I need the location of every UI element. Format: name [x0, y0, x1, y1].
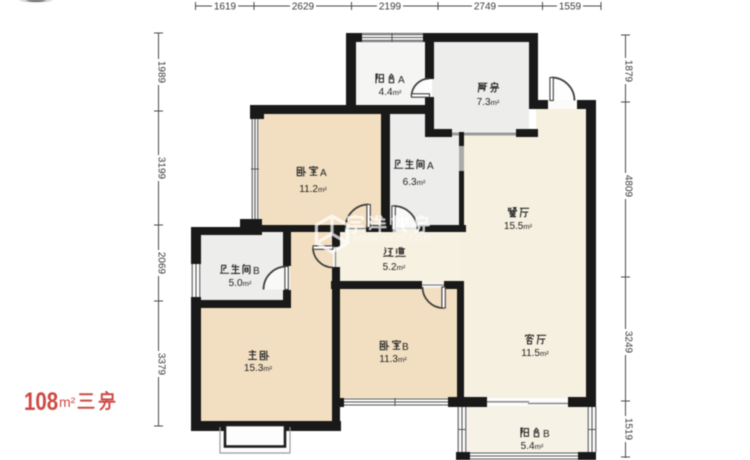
svg-text:11.3m²: 11.3m² — [379, 354, 407, 365]
svg-text:7.3m²: 7.3m² — [477, 97, 500, 108]
svg-text:A: A — [427, 161, 434, 172]
svg-text:3379: 3379 — [156, 353, 167, 376]
svg-text:B: B — [543, 429, 550, 440]
svg-text:5.4m²: 5.4m² — [521, 441, 544, 452]
svg-text:1559: 1559 — [559, 2, 582, 13]
svg-text:4809: 4809 — [623, 175, 634, 198]
svg-text:A: A — [398, 75, 405, 86]
svg-text:2069: 2069 — [156, 252, 167, 275]
svg-text:3249: 3249 — [623, 331, 634, 354]
svg-text:11.5m²: 11.5m² — [521, 348, 549, 359]
svg-text:3199: 3199 — [156, 157, 167, 180]
svg-text:2749: 2749 — [474, 2, 497, 13]
svg-text:4.4m²: 4.4m² — [379, 87, 402, 98]
svg-text:1879: 1879 — [623, 60, 634, 83]
svg-text:2629: 2629 — [292, 2, 315, 13]
svg-text:1519: 1519 — [623, 418, 634, 441]
svg-text:2199: 2199 — [379, 2, 402, 13]
svg-text:11.2m²: 11.2m² — [299, 184, 327, 195]
svg-text:15.5m²: 15.5m² — [504, 221, 533, 232]
svg-text:A: A — [320, 168, 327, 179]
svg-text:108: 108 — [24, 387, 58, 415]
svg-text:5.2m²: 5.2m² — [383, 262, 406, 273]
svg-text:1619: 1619 — [214, 2, 237, 13]
svg-text:B: B — [253, 266, 260, 277]
svg-text:6.3m²: 6.3m² — [403, 177, 426, 188]
svg-text:1989: 1989 — [156, 61, 167, 84]
svg-text:5.0m²: 5.0m² — [229, 278, 252, 289]
svg-text:m²: m² — [59, 394, 76, 410]
svg-text:15.3m²: 15.3m² — [244, 363, 273, 374]
svg-text:WWW.YY23.COM: WWW.YY23.COM — [353, 233, 432, 243]
svg-text:B: B — [402, 342, 409, 353]
